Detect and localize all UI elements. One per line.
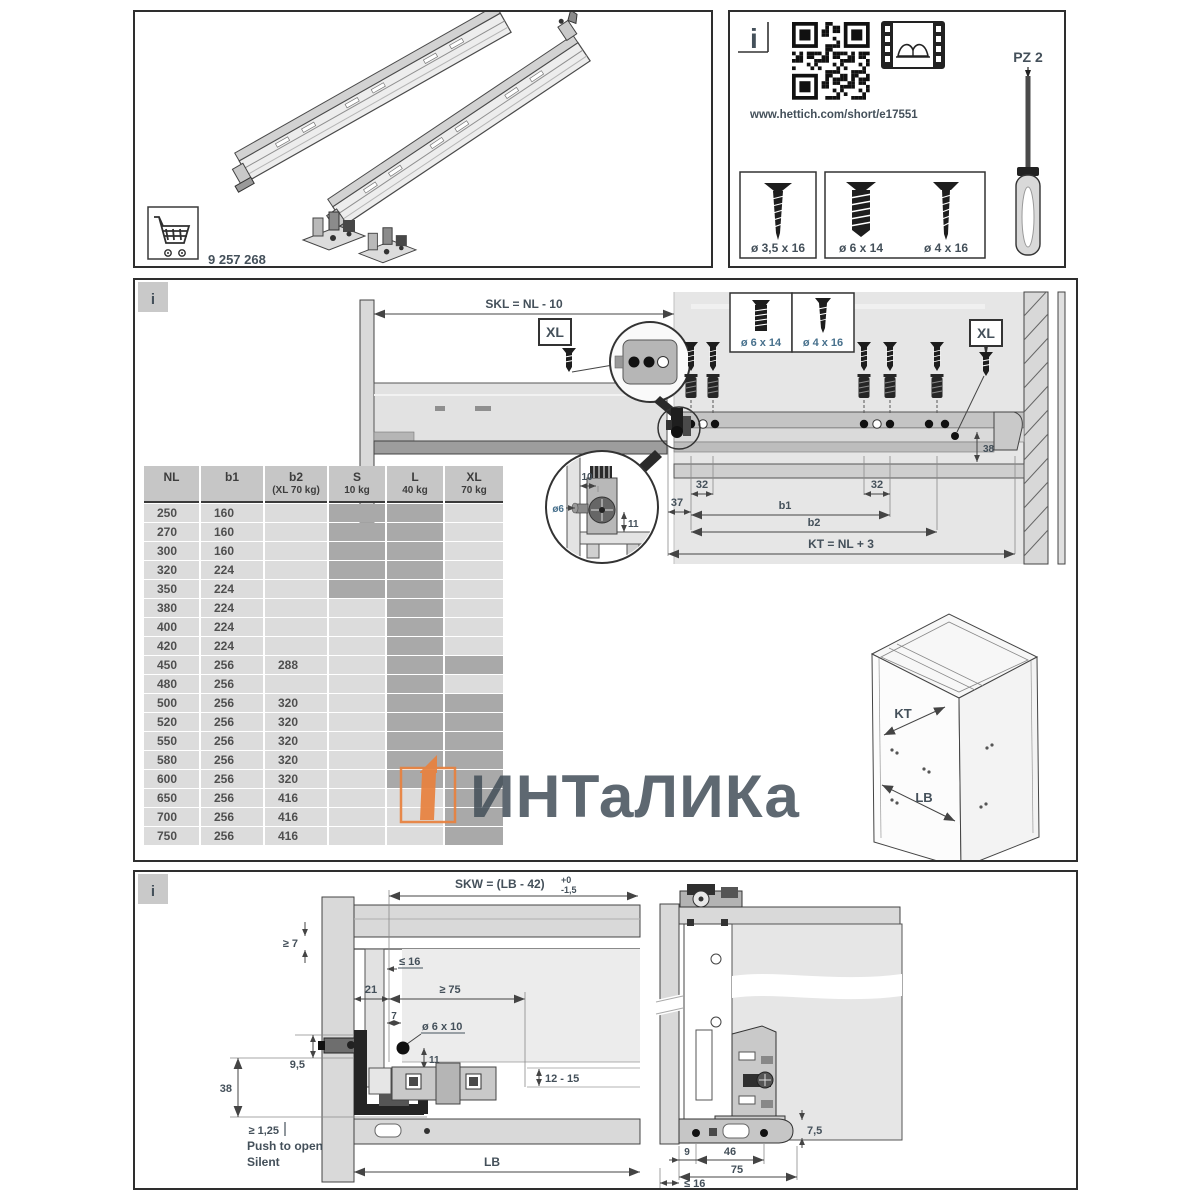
cell-xl bbox=[445, 675, 503, 693]
dim-7: 7 bbox=[391, 1011, 397, 1022]
dim-38: 38 bbox=[983, 444, 995, 455]
cell-l bbox=[387, 637, 443, 655]
table-row: 450256288 bbox=[144, 656, 503, 674]
cabinet-bottom bbox=[674, 464, 1024, 478]
cell-xl bbox=[445, 618, 503, 636]
dim-38: 38 bbox=[220, 1083, 232, 1095]
col-b1: b1 bbox=[201, 466, 263, 503]
cell-s bbox=[329, 827, 385, 845]
cell-l bbox=[387, 618, 443, 636]
cell-b2: 320 bbox=[265, 751, 327, 769]
cabinet-runner bbox=[674, 412, 1024, 452]
screwdriver-icon: PZ 2 bbox=[1013, 49, 1043, 255]
cell-b2: 320 bbox=[265, 732, 327, 750]
screw-4-label: ø 4 x 16 bbox=[924, 241, 968, 255]
cell-nl: 650 bbox=[144, 789, 199, 807]
table-row: 300160 bbox=[144, 542, 503, 560]
cell-l bbox=[387, 599, 443, 617]
table-row: 250160 bbox=[144, 504, 503, 522]
screw-35-label: ø 3,5 x 16 bbox=[751, 241, 805, 255]
cell-b2 bbox=[265, 561, 327, 579]
cell-xl bbox=[445, 713, 503, 731]
cell-xl bbox=[445, 523, 503, 541]
cell-l bbox=[387, 523, 443, 541]
cell-xl bbox=[445, 808, 503, 826]
xl-label-right: XL bbox=[977, 325, 995, 341]
screw-spec-boxes: ø 6 x 14 ø 4 x 16 bbox=[730, 293, 854, 352]
cell-b2: 320 bbox=[265, 770, 327, 788]
cell-nl: 580 bbox=[144, 751, 199, 769]
detail-circle-rear-hooks bbox=[610, 322, 690, 402]
xl-label-left: XL bbox=[546, 324, 564, 340]
cell-b2: 320 bbox=[265, 694, 327, 712]
cell-nl: 250 bbox=[144, 504, 199, 522]
table-row: 320224 bbox=[144, 561, 503, 579]
table-row: 400224 bbox=[144, 618, 503, 636]
cell-s bbox=[329, 751, 385, 769]
cell-s bbox=[329, 504, 385, 522]
cell-b1: 160 bbox=[201, 504, 263, 522]
cell-b1: 224 bbox=[201, 580, 263, 598]
cell-b1: 224 bbox=[201, 637, 263, 655]
dim-le16: ≤ 16 bbox=[399, 956, 420, 968]
part-number: 9 257 268 bbox=[208, 252, 266, 266]
col-s: S10 kg bbox=[329, 466, 385, 503]
cell-b2: 416 bbox=[265, 789, 327, 807]
front-latch bbox=[732, 1026, 776, 1126]
cell-s bbox=[329, 656, 385, 674]
drawer-side-view bbox=[374, 383, 667, 454]
cell-s bbox=[329, 542, 385, 560]
cell-b1: 256 bbox=[201, 808, 263, 826]
screw4-label: ø 4 x 16 bbox=[803, 337, 843, 349]
dimensions-table-body: 2501602701603001603202243502243802244002… bbox=[144, 504, 503, 845]
cell-nl: 750 bbox=[144, 827, 199, 845]
cell-l bbox=[387, 751, 443, 769]
table-row: 650256416 bbox=[144, 789, 503, 807]
plan-view-drawing: SKW = (LB - 42) +0 -1,5 ≥ 7 ≤ 16 21 ≥ 75 bbox=[220, 875, 640, 1182]
cell-l bbox=[387, 656, 443, 674]
col-nl: NL bbox=[144, 466, 199, 503]
cell-b2 bbox=[265, 523, 327, 541]
cell-b2: 416 bbox=[265, 808, 327, 826]
silent-label: Silent bbox=[247, 1155, 280, 1169]
cell-s bbox=[329, 789, 385, 807]
push-to-open-label: Push to open bbox=[247, 1139, 323, 1153]
cell-b1: 224 bbox=[201, 618, 263, 636]
cell-s bbox=[329, 618, 385, 636]
table-row: 750256416 bbox=[144, 827, 503, 845]
dim-32-right: 32 bbox=[871, 479, 883, 491]
cell-l bbox=[387, 770, 443, 788]
cell-nl: 550 bbox=[144, 732, 199, 750]
dim-37: 37 bbox=[671, 497, 683, 509]
col-xl: XL70 kg bbox=[445, 466, 503, 503]
table-row: 270160 bbox=[144, 523, 503, 541]
panel-mounting-sections: i SKW = (LB - 42) +0 -1,5 ≥ 7 bbox=[133, 870, 1078, 1190]
detail-dim-o6: ø6 bbox=[552, 504, 564, 515]
screw6-label: ø 6 x 14 bbox=[741, 337, 782, 349]
dim-ge7: ≥ 7 bbox=[283, 938, 298, 950]
table-row: 350224 bbox=[144, 580, 503, 598]
cell-nl: 320 bbox=[144, 561, 199, 579]
cell-nl: 400 bbox=[144, 618, 199, 636]
skw-sup: +0 bbox=[561, 875, 571, 885]
runner-block bbox=[392, 1063, 496, 1104]
cell-s bbox=[329, 732, 385, 750]
cell-b2 bbox=[265, 504, 327, 522]
cell-l bbox=[387, 504, 443, 522]
coupling-clips bbox=[303, 212, 416, 263]
dim-46: 46 bbox=[724, 1146, 736, 1158]
dim-21: 21 bbox=[365, 984, 377, 996]
cell-xl bbox=[445, 637, 503, 655]
cell-nl: 350 bbox=[144, 580, 199, 598]
dim-75: 75 bbox=[731, 1164, 743, 1176]
cell-nl: 700 bbox=[144, 808, 199, 826]
cell-b2 bbox=[265, 675, 327, 693]
skl-formula: SKL = NL - 10 bbox=[485, 297, 563, 311]
cell-b1: 256 bbox=[201, 751, 263, 769]
dim-32-left: 32 bbox=[696, 479, 708, 491]
dim-le16r: ≤ 16 bbox=[684, 1178, 705, 1188]
cell-b2: 416 bbox=[265, 827, 327, 845]
cell-l bbox=[387, 732, 443, 750]
cell-s bbox=[329, 713, 385, 731]
table-row: 520256320 bbox=[144, 713, 503, 731]
cell-l bbox=[387, 542, 443, 560]
cell-b2 bbox=[265, 599, 327, 617]
instruction-sheet: 9 257 268 i www.hettich.com/short/e17551 bbox=[0, 0, 1200, 1200]
panel-info-tools: i www.hettich.com/short/e17551 bbox=[728, 10, 1066, 268]
cell-b1: 256 bbox=[201, 656, 263, 674]
cell-b1: 256 bbox=[201, 713, 263, 731]
screw-spec-box-6-4: ø 6 x 14 ø 4 x 16 bbox=[825, 172, 985, 258]
cell-nl: 500 bbox=[144, 694, 199, 712]
cell-xl bbox=[445, 656, 503, 674]
info-tools-drawing: i www.hettich.com/short/e17551 bbox=[730, 12, 1064, 266]
col-b2: b2(XL 70 kg) bbox=[265, 466, 327, 503]
table-row: 480256 bbox=[144, 675, 503, 693]
dimensions-table: NL b1 b2(XL 70 kg) S10 kg L40 kg XL70 kg… bbox=[142, 465, 505, 846]
cell-nl: 380 bbox=[144, 599, 199, 617]
screw-spec-box-35: ø 3,5 x 16 bbox=[740, 172, 816, 258]
cell-b1: 256 bbox=[201, 694, 263, 712]
mounting-drawing: i SKW = (LB - 42) +0 -1,5 ≥ 7 bbox=[135, 872, 1076, 1188]
dim-b1: b1 bbox=[779, 500, 792, 512]
info-icon: i bbox=[151, 883, 155, 900]
cell-nl: 600 bbox=[144, 770, 199, 788]
driver-size-label: PZ 2 bbox=[1013, 49, 1043, 65]
dim-lb: LB bbox=[484, 1155, 500, 1169]
dim-ge125: ≥ 1,25 bbox=[248, 1125, 279, 1137]
cell-b1: 224 bbox=[201, 599, 263, 617]
cabinet-isometric: KT LB bbox=[872, 614, 1039, 860]
cell-b2 bbox=[265, 637, 327, 655]
cell-nl: 480 bbox=[144, 675, 199, 693]
skw-formula: SKW = (LB - 42) bbox=[455, 877, 545, 891]
cabinet-lb: LB bbox=[915, 790, 932, 805]
qr-code bbox=[788, 18, 874, 104]
cell-xl bbox=[445, 827, 503, 845]
xl-marker-left: XL bbox=[539, 319, 613, 372]
table-header-row: NL b1 b2(XL 70 kg) S10 kg L40 kg XL70 kg bbox=[144, 466, 503, 503]
dim-ge75: ≥ 75 bbox=[439, 984, 460, 996]
cabinet-kt: KT bbox=[894, 706, 911, 721]
cell-b1: 256 bbox=[201, 789, 263, 807]
table-row: 600256320 bbox=[144, 770, 503, 788]
cell-xl bbox=[445, 504, 503, 522]
kt-formula: KT = NL + 3 bbox=[808, 537, 874, 551]
cell-s bbox=[329, 561, 385, 579]
info-icon: i bbox=[151, 291, 155, 308]
cell-b1: 256 bbox=[201, 827, 263, 845]
table-row: 380224 bbox=[144, 599, 503, 617]
cell-s bbox=[329, 523, 385, 541]
cell-b2 bbox=[265, 542, 327, 560]
cell-xl bbox=[445, 751, 503, 769]
cell-b1: 256 bbox=[201, 770, 263, 788]
top-clamp bbox=[680, 884, 742, 907]
dim-b2: b2 bbox=[808, 517, 821, 529]
table-row: 580256320 bbox=[144, 751, 503, 769]
dim-75r: 7,5 bbox=[807, 1125, 822, 1137]
cell-b2 bbox=[265, 580, 327, 598]
cell-b2: 320 bbox=[265, 713, 327, 731]
panel-product-overview: 9 257 268 bbox=[133, 10, 713, 268]
cell-xl bbox=[445, 694, 503, 712]
cell-b1: 160 bbox=[201, 523, 263, 541]
cell-s bbox=[329, 599, 385, 617]
cell-l bbox=[387, 827, 443, 845]
cell-xl bbox=[445, 732, 503, 750]
cell-s bbox=[329, 694, 385, 712]
table-row: 550256320 bbox=[144, 732, 503, 750]
table-row: 700256416 bbox=[144, 808, 503, 826]
cell-xl bbox=[445, 580, 503, 598]
cell-xl bbox=[445, 599, 503, 617]
video-manual-icon bbox=[882, 22, 944, 68]
detail-circle-front-bracket: 10 ø6 11 bbox=[546, 451, 658, 563]
dim-o6x10: ø 6 x 10 bbox=[422, 1021, 462, 1033]
cell-l bbox=[387, 675, 443, 693]
panel-installation: i bbox=[133, 278, 1078, 862]
cell-b1: 256 bbox=[201, 732, 263, 750]
cell-b1: 224 bbox=[201, 561, 263, 579]
detail-dim-10: 10 bbox=[581, 472, 593, 483]
col-l: L40 kg bbox=[387, 466, 443, 503]
cell-xl bbox=[445, 789, 503, 807]
cell-l bbox=[387, 713, 443, 731]
cell-b1: 160 bbox=[201, 542, 263, 560]
cell-l bbox=[387, 694, 443, 712]
cell-b2 bbox=[265, 618, 327, 636]
skw-sub: -1,5 bbox=[561, 885, 577, 895]
cell-s bbox=[329, 675, 385, 693]
cell-nl: 270 bbox=[144, 523, 199, 541]
cell-s bbox=[329, 637, 385, 655]
drawer-side-wall bbox=[660, 904, 679, 1144]
cell-b2: 288 bbox=[265, 656, 327, 674]
cell-xl bbox=[445, 542, 503, 560]
cell-s bbox=[329, 580, 385, 598]
short-url: www.hettich.com/short/e17551 bbox=[749, 109, 918, 121]
cell-xl bbox=[445, 770, 503, 788]
cell-nl: 420 bbox=[144, 637, 199, 655]
xl-screw-left bbox=[562, 348, 576, 372]
dim-95: 9,5 bbox=[290, 1059, 305, 1071]
cell-l bbox=[387, 561, 443, 579]
drill-hole bbox=[397, 1042, 410, 1055]
info-icon: i bbox=[750, 23, 758, 54]
cell-nl: 300 bbox=[144, 542, 199, 560]
product-drawing: 9 257 268 bbox=[135, 12, 711, 266]
cell-l bbox=[387, 808, 443, 826]
cabinet-back-wall bbox=[1024, 290, 1065, 564]
cell-xl bbox=[445, 561, 503, 579]
cell-s bbox=[329, 770, 385, 788]
section-view-drawing: 7,5 9 46 75 ≤ 16 bbox=[656, 884, 902, 1188]
dim-9: 9 bbox=[684, 1147, 690, 1158]
screw-6-label: ø 6 x 14 bbox=[839, 241, 883, 255]
table-row: 420224 bbox=[144, 637, 503, 655]
cell-nl: 520 bbox=[144, 713, 199, 731]
detail-dim-11: 11 bbox=[628, 519, 639, 530]
cell-l bbox=[387, 789, 443, 807]
cell-s bbox=[329, 808, 385, 826]
cell-b1: 256 bbox=[201, 675, 263, 693]
table-row: 500256320 bbox=[144, 694, 503, 712]
cell-nl: 450 bbox=[144, 656, 199, 674]
cell-l bbox=[387, 580, 443, 598]
dim-1215: 12 - 15 bbox=[545, 1073, 579, 1085]
